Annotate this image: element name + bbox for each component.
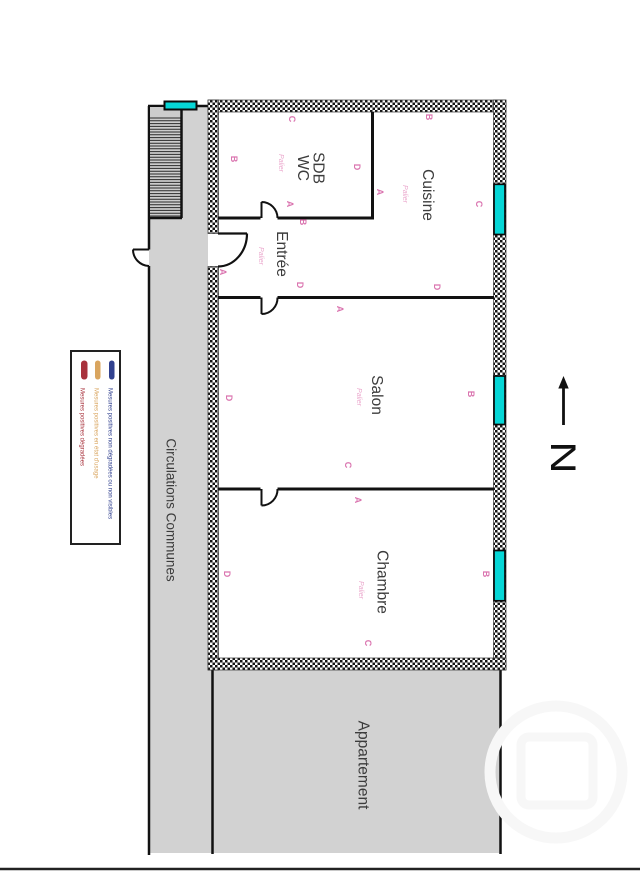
svg-text:N: N [543, 441, 582, 473]
svg-text:D: D [295, 282, 305, 289]
svg-text:Mesures positives non dégradée: Mesures positives non dégradées ou non v… [107, 388, 113, 519]
svg-text:Entrée: Entrée [273, 231, 290, 277]
svg-text:Palier: Palier [277, 154, 284, 173]
svg-text:B: B [481, 571, 491, 578]
svg-text:D: D [222, 571, 232, 578]
svg-text:D: D [224, 395, 234, 402]
svg-text:SDBWC: SDBWC [294, 152, 327, 184]
svg-text:A: A [285, 201, 295, 208]
svg-text:D: D [432, 284, 442, 291]
svg-text:A: A [218, 269, 228, 276]
svg-text:Circulations Communes: Circulations Communes [164, 438, 179, 582]
svg-text:Appartement: Appartement [355, 721, 372, 810]
svg-text:Cuisine: Cuisine [419, 169, 436, 221]
svg-text:B: B [424, 114, 434, 121]
svg-text:Palier: Palier [355, 388, 362, 407]
svg-text:B: B [298, 219, 308, 226]
svg-text:B: B [466, 391, 476, 398]
svg-text:C: C [287, 116, 297, 123]
svg-text:Mesures positives en état d'us: Mesures positives en état d'usage [93, 388, 99, 479]
svg-text:C: C [474, 201, 484, 208]
svg-text:Palier: Palier [401, 185, 408, 204]
svg-text:B: B [229, 156, 239, 163]
svg-text:D: D [352, 164, 362, 171]
svg-text:C: C [363, 640, 373, 647]
svg-text:Salon: Salon [368, 375, 385, 415]
svg-text:Chambre: Chambre [374, 550, 391, 614]
svg-text:Mesures positives dégradées: Mesures positives dégradées [79, 388, 85, 466]
svg-text:A: A [375, 189, 385, 196]
svg-text:Palier: Palier [257, 247, 264, 266]
svg-text:Palier: Palier [357, 581, 364, 600]
svg-text:C: C [343, 462, 353, 469]
svg-text:A: A [353, 497, 363, 504]
svg-text:A: A [335, 306, 345, 313]
